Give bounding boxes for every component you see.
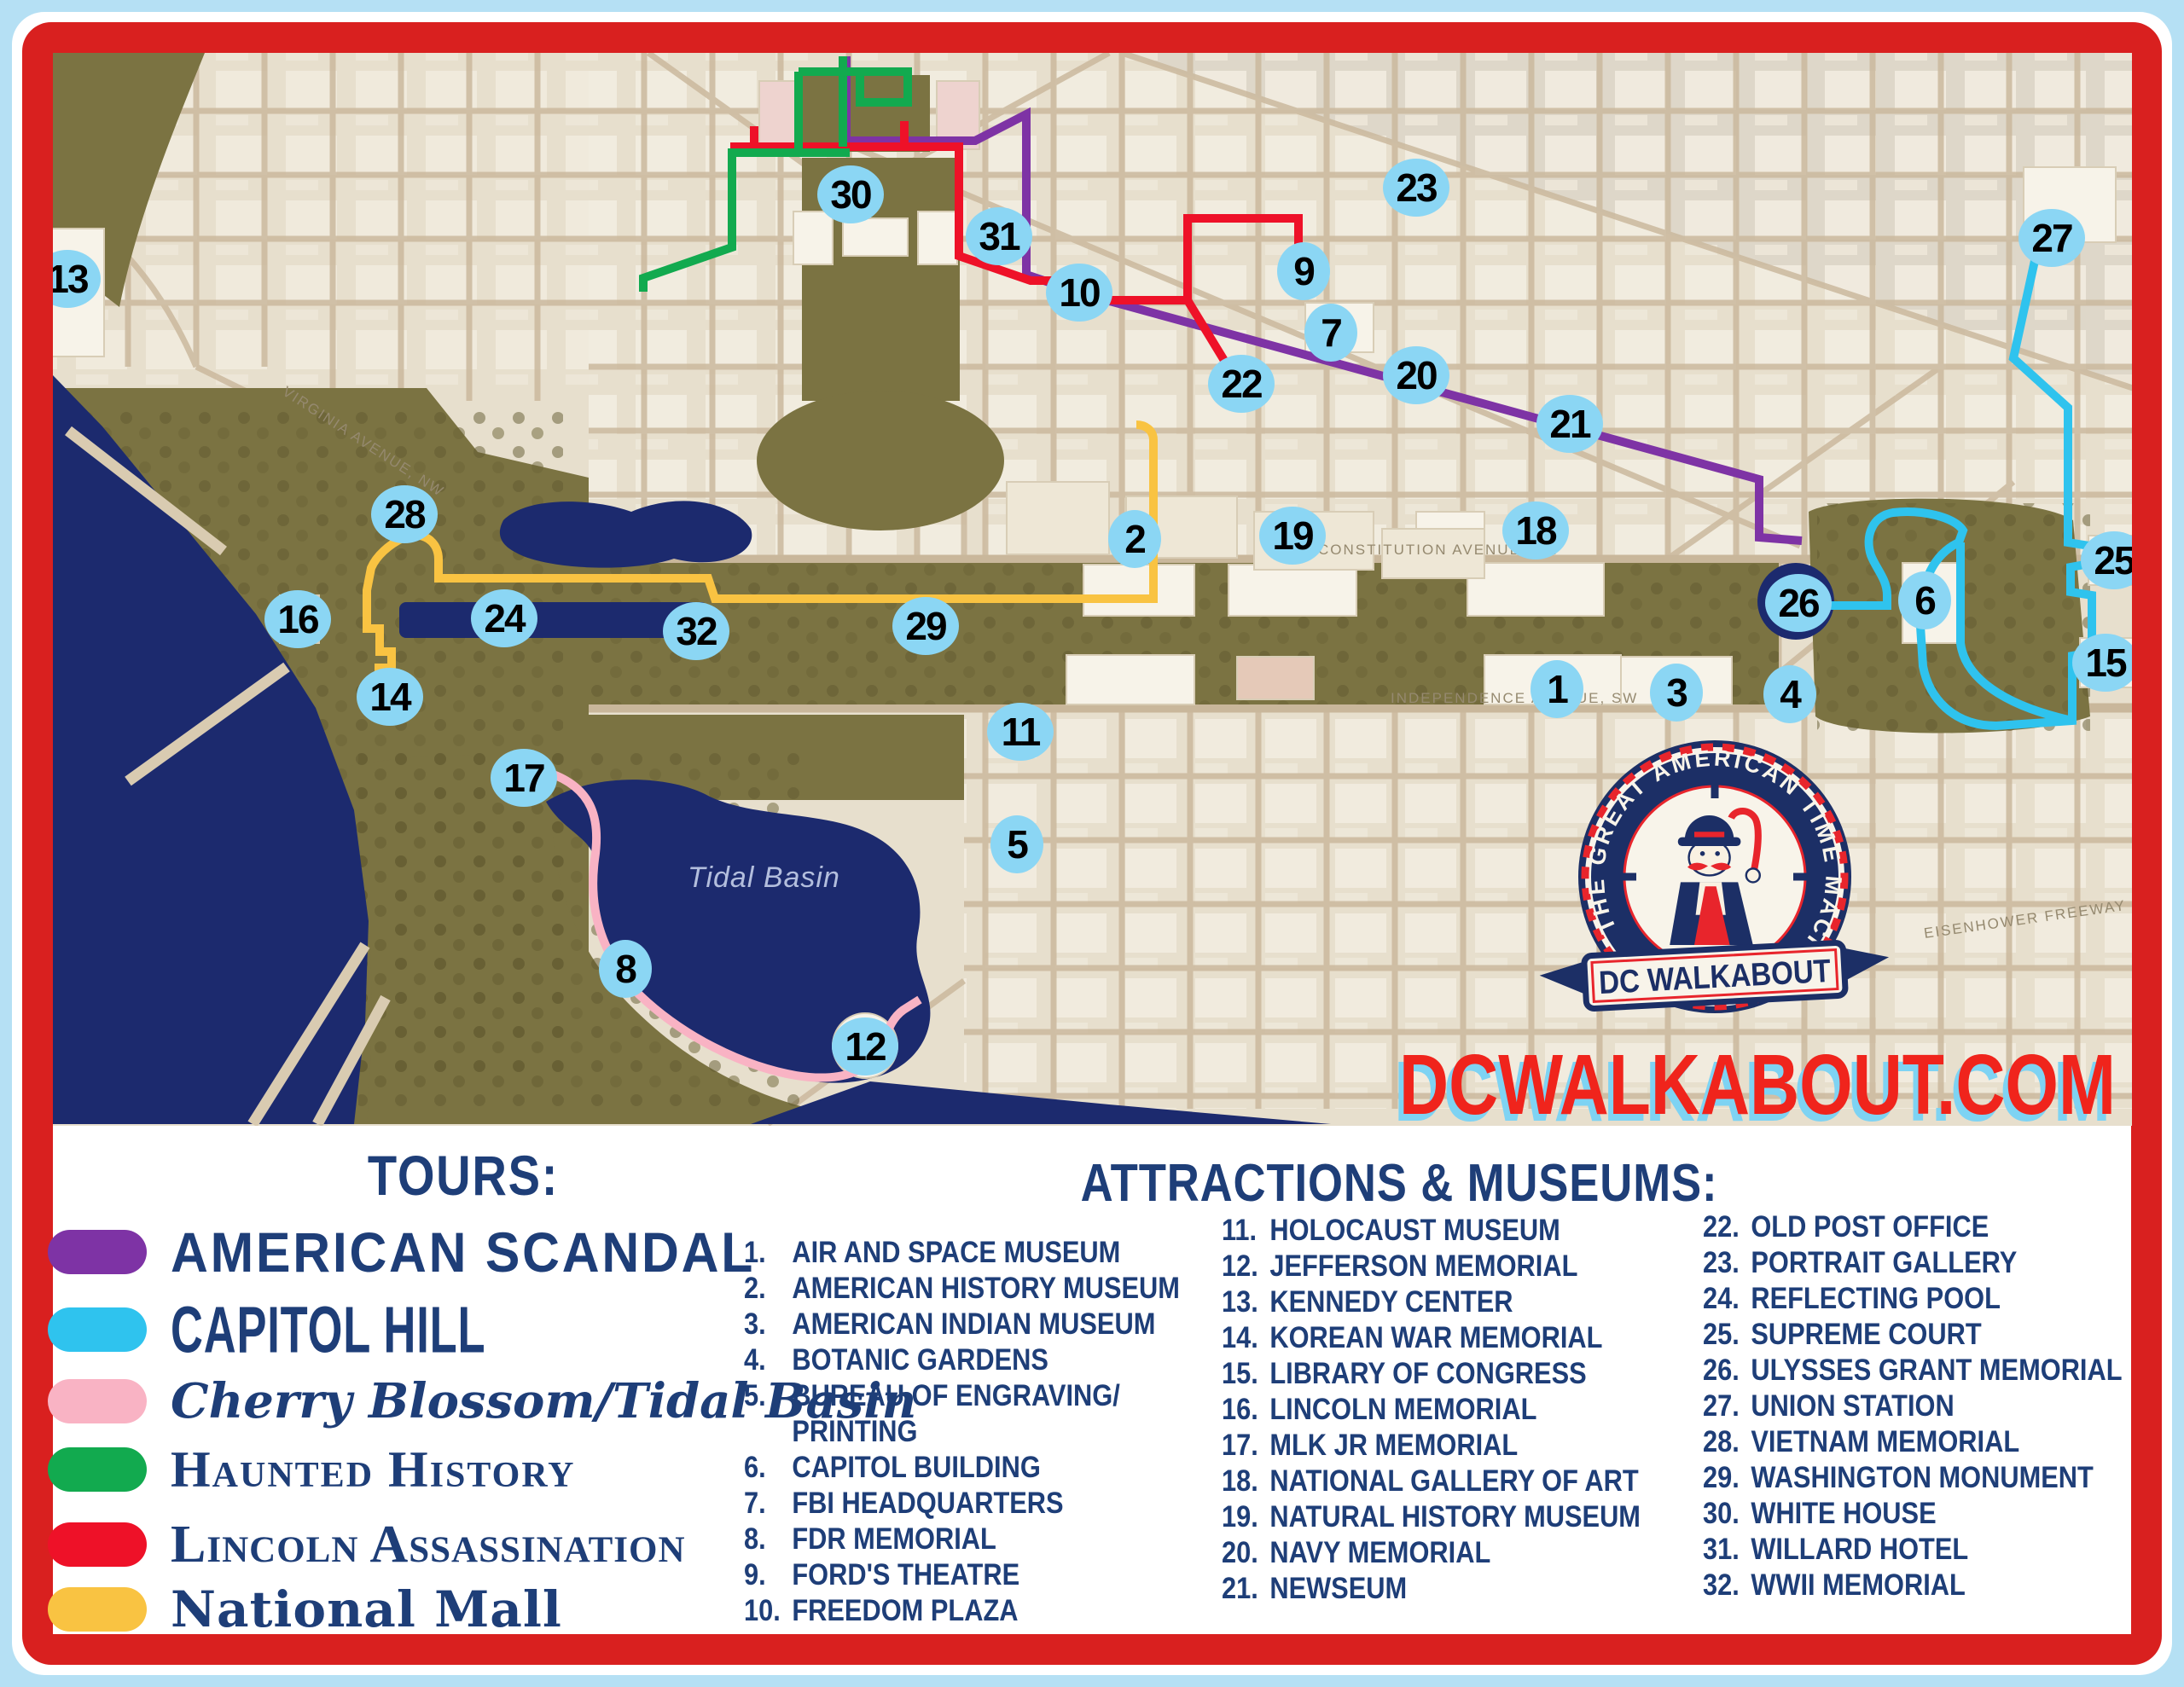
attraction-label: LIBRARY OF CONGRESS (1269, 1356, 1586, 1392)
attraction-item: 8.FDR MEMORIAL (744, 1522, 1180, 1557)
map-marker-number: 12 (845, 1024, 886, 1069)
attraction-number: 2. (744, 1271, 792, 1307)
attraction-label: FREEDOM PLAZA (792, 1593, 1018, 1629)
tour-row-lincoln-assassination: Lincoln Assassination (48, 1518, 686, 1571)
attractions-column-2: 11.HOLOCAUST MUSEUM12.JEFFERSON MEMORIAL… (1222, 1213, 1641, 1607)
attraction-label: BUREAU OF ENGRAVING/PRINTING (792, 1378, 1119, 1450)
attraction-number: 20. (1222, 1535, 1269, 1571)
attraction-label: BOTANIC GARDENS (792, 1342, 1048, 1378)
map-marker-number: 25 (2094, 538, 2132, 583)
map-marker-number: 30 (830, 172, 871, 217)
website-url-text[interactable]: DCWALKABOUT.COM (1399, 1037, 2116, 1126)
attraction-label: HOLOCAUST MUSEUM (1269, 1213, 1560, 1249)
attraction-label: CAPITOL BUILDING (792, 1450, 1040, 1486)
attraction-item: 28.VIETNAM MEMORIAL (1703, 1424, 2123, 1460)
attraction-number: 25. (1703, 1317, 1751, 1353)
white-house-building (843, 218, 908, 256)
attraction-number: 8. (744, 1522, 792, 1557)
attraction-number: 14. (1222, 1320, 1269, 1356)
attraction-item: 2.AMERICAN HISTORY MUSEUM (744, 1271, 1180, 1307)
tour-swatch-cherry-blossom (48, 1379, 147, 1423)
attraction-item: 26.ULYSSES GRANT MEMORIAL (1703, 1353, 2123, 1388)
attraction-item: 32.WWII MEMORIAL (1703, 1568, 2123, 1603)
attraction-item: 7.FBI HEADQUARTERS (744, 1486, 1180, 1522)
map-marker-number: 3 (1666, 670, 1687, 715)
map-marker-number: 23 (1396, 165, 1437, 210)
attraction-label: AMERICAN HISTORY MUSEUM (792, 1271, 1180, 1307)
map-marker-number: 14 (369, 675, 412, 719)
attraction-number: 17. (1222, 1428, 1269, 1464)
attraction-label: FORD'S THEATRE (792, 1557, 1019, 1593)
attraction-item: 22.OLD POST OFFICE (1703, 1209, 2123, 1245)
attraction-number: 1. (744, 1235, 792, 1271)
attraction-number: 22. (1703, 1209, 1751, 1245)
map-marker-number: 2 (1124, 517, 1145, 561)
tour-swatch-american-scandal (48, 1230, 147, 1274)
attraction-number: 9. (744, 1557, 792, 1593)
map-marker-number: 24 (484, 596, 526, 641)
attraction-number: 10. (744, 1593, 792, 1629)
attraction-label: REFLECTING POOL (1751, 1281, 2001, 1317)
attraction-number: 7. (744, 1486, 792, 1522)
attraction-label: PORTRAIT GALLERY (1751, 1245, 2017, 1281)
attraction-item: 19.NATURAL HISTORY MUSEUM (1222, 1499, 1641, 1535)
attraction-label: KOREAN WAR MEMORIAL (1269, 1320, 1602, 1356)
attraction-label: UNION STATION (1751, 1388, 1954, 1424)
tour-swatch-national-mall (48, 1587, 147, 1632)
map-marker-number: 9 (1293, 249, 1314, 293)
attraction-item: 6.CAPITOL BUILDING (744, 1450, 1180, 1486)
attraction-label: FDR MEMORIAL (792, 1522, 996, 1557)
attraction-label: WILLARD HOTEL (1751, 1532, 1968, 1568)
attractions-title: ATTRACTIONS & MUSEUMS: (1037, 1153, 1762, 1214)
attraction-item: 16.LINCOLN MEMORIAL (1222, 1392, 1641, 1428)
attraction-number: 11. (1222, 1213, 1269, 1249)
tour-row-american-scandal: AMERICAN SCANDAL (48, 1224, 806, 1280)
tour-label-american-scandal: AMERICAN SCANDAL (171, 1224, 755, 1280)
map-marker-number: 7 (1321, 310, 1341, 355)
dc-map: CONSTITUTION AVENUE, NWINDEPENDENCE AVEN… (53, 53, 2132, 1126)
attraction-number: 3. (744, 1307, 792, 1342)
attraction-number: 16. (1222, 1392, 1269, 1428)
attraction-item: 15.LIBRARY OF CONGRESS (1222, 1356, 1641, 1392)
attraction-item: 24.REFLECTING POOL (1703, 1281, 2123, 1317)
attraction-item: 23.PORTRAIT GALLERY (1703, 1245, 2123, 1281)
attraction-label: ULYSSES GRANT MEMORIAL (1751, 1353, 2122, 1388)
attraction-label: WWII MEMORIAL (1751, 1568, 1965, 1603)
attractions-column-3: 22.OLD POST OFFICE23.PORTRAIT GALLERY24.… (1703, 1209, 2123, 1603)
attraction-item: 10.FREEDOM PLAZA (744, 1593, 1180, 1629)
attraction-number: 13. (1222, 1284, 1269, 1320)
attraction-number: 29. (1703, 1460, 1751, 1496)
map-marker-number: 28 (384, 492, 426, 536)
attraction-label: AIR AND SPACE MUSEUM (792, 1235, 1120, 1271)
reflecting-pool (399, 602, 708, 638)
attraction-item: 1.AIR AND SPACE MUSEUM (744, 1235, 1180, 1271)
attraction-label: KENNEDY CENTER (1269, 1284, 1513, 1320)
attraction-number: 21. (1222, 1571, 1269, 1607)
attraction-item: 4.BOTANIC GARDENS (744, 1342, 1180, 1378)
map-marker-number: 21 (1549, 402, 1591, 446)
attractions-column-1: 1.AIR AND SPACE MUSEUM2.AMERICAN HISTORY… (744, 1235, 1180, 1629)
attraction-label: NAVY MEMORIAL (1269, 1535, 1490, 1571)
attraction-item: 20.NAVY MEMORIAL (1222, 1535, 1641, 1571)
attraction-item: 9.FORD'S THEATRE (744, 1557, 1180, 1593)
tidal-basin-label: Tidal Basin (688, 861, 840, 894)
attraction-label: NEWSEUM (1269, 1571, 1407, 1607)
tour-swatch-haunted-history (48, 1447, 147, 1492)
map-marker-number: 26 (1778, 581, 1819, 625)
tour-label-capitol-hill: CAPITOL HILL (171, 1297, 485, 1363)
attraction-item: 17.MLK JR MEMORIAL (1222, 1428, 1641, 1464)
map-marker-number: 10 (1059, 270, 1100, 315)
attraction-number: 24. (1703, 1281, 1751, 1317)
attraction-item: 12.JEFFERSON MEMORIAL (1222, 1249, 1641, 1284)
attraction-label: LINCOLN MEMORIAL (1269, 1392, 1536, 1428)
map-marker-number: 16 (277, 597, 318, 641)
attraction-number: 5. (744, 1378, 792, 1450)
tour-swatch-lincoln-assassination (48, 1522, 147, 1567)
map-marker-number: 1 (1547, 667, 1568, 711)
tour-swatch-capitol-hill (48, 1307, 147, 1352)
map-marker-number: 5 (1007, 822, 1028, 867)
attraction-item: 11.HOLOCAUST MUSEUM (1222, 1213, 1641, 1249)
attraction-item: 5.BUREAU OF ENGRAVING/PRINTING (744, 1378, 1180, 1450)
map-marker-number: 8 (615, 947, 636, 991)
attraction-number: 12. (1222, 1249, 1269, 1284)
tour-label-national-mall: National Mall (171, 1585, 562, 1634)
website-url[interactable]: DCWALKABOUT.COM DCWALKABOUT.COM (1394, 1037, 2116, 1126)
tour-row-capitol-hill: CAPITOL HILL (48, 1302, 555, 1357)
map-marker-number: 13 (53, 257, 88, 301)
map-marker-number: 17 (503, 756, 544, 800)
attraction-number: 30. (1703, 1496, 1751, 1532)
attraction-number: 4. (744, 1342, 792, 1378)
attraction-label: AMERICAN INDIAN MUSEUM (792, 1307, 1155, 1342)
attraction-number: 23. (1703, 1245, 1751, 1281)
attraction-label: JEFFERSON MEMORIAL (1269, 1249, 1577, 1284)
tour-row-national-mall: National Mall (48, 1585, 562, 1634)
attraction-number: 15. (1222, 1356, 1269, 1392)
attraction-label: WHITE HOUSE (1751, 1496, 1936, 1532)
dc-walkabout-poster: { "frame": { "url_text": "DCWALKABOUT.CO… (0, 0, 2184, 1687)
attraction-number: 18. (1222, 1464, 1269, 1499)
attraction-item: 18.NATIONAL GALLERY OF ART (1222, 1464, 1641, 1499)
attraction-item: 25.SUPREME COURT (1703, 1317, 2123, 1353)
attraction-label-line2: PRINTING (792, 1414, 1119, 1450)
attraction-label: NATIONAL GALLERY OF ART (1269, 1464, 1638, 1499)
map-marker-number: 22 (1221, 362, 1262, 406)
attraction-item: 31.WILLARD HOTEL (1703, 1532, 2123, 1568)
map-marker-number: 29 (905, 604, 946, 648)
attraction-label: NATURAL HISTORY MUSEUM (1269, 1499, 1641, 1535)
attraction-item: 30.WHITE HOUSE (1703, 1496, 2123, 1532)
attraction-number: 6. (744, 1450, 792, 1486)
map-marker-number: 15 (2085, 641, 2127, 685)
attraction-number: 27. (1703, 1388, 1751, 1424)
attraction-label: OLD POST OFFICE (1751, 1209, 1989, 1245)
attraction-number: 19. (1222, 1499, 1269, 1535)
map-marker-number: 18 (1515, 508, 1557, 553)
constitution-gardens-pond (500, 501, 752, 567)
street-label: INDEPENDENCE AVENUE, SW (1391, 690, 1638, 706)
attraction-label: WASHINGTON MONUMENT (1751, 1460, 2094, 1496)
map-marker-number: 6 (1914, 578, 1935, 623)
attraction-number: 28. (1703, 1424, 1751, 1460)
tour-label-haunted-history: Haunted History (171, 1444, 576, 1495)
map-area: CONSTITUTION AVENUE, NWINDEPENDENCE AVEN… (53, 53, 2132, 1126)
attraction-item: 21.NEWSEUM (1222, 1571, 1641, 1607)
attraction-number: 26. (1703, 1353, 1751, 1388)
map-marker-number: 20 (1396, 353, 1437, 397)
map-marker-number: 19 (1272, 513, 1313, 558)
attraction-item: 14.KOREAN WAR MEMORIAL (1222, 1320, 1641, 1356)
attraction-label: FBI HEADQUARTERS (792, 1486, 1063, 1522)
attraction-number: 31. (1703, 1532, 1751, 1568)
map-marker-number: 32 (676, 609, 717, 653)
map-marker-number: 27 (2031, 216, 2072, 260)
map-marker-number: 31 (979, 214, 1020, 258)
attraction-label: MLK JR MEMORIAL (1269, 1428, 1518, 1464)
attraction-item: 13.KENNEDY CENTER (1222, 1284, 1641, 1320)
tour-label-lincoln-assassination: Lincoln Assassination (171, 1518, 686, 1571)
map-marker-number: 4 (1780, 672, 1802, 716)
map-marker-number: 11 (1002, 710, 1041, 754)
attraction-item: 3.AMERICAN INDIAN MUSEUM (744, 1307, 1180, 1342)
attraction-label: SUPREME COURT (1751, 1317, 1981, 1353)
attraction-number: 32. (1703, 1568, 1751, 1603)
attraction-item: 29.WASHINGTON MONUMENT (1703, 1460, 2123, 1496)
tour-row-haunted-history: Haunted History (48, 1444, 576, 1495)
attraction-item: 27.UNION STATION (1703, 1388, 2123, 1424)
tours-title: TOURS: (318, 1143, 608, 1208)
attraction-label: VIETNAM MEMORIAL (1751, 1424, 2019, 1460)
